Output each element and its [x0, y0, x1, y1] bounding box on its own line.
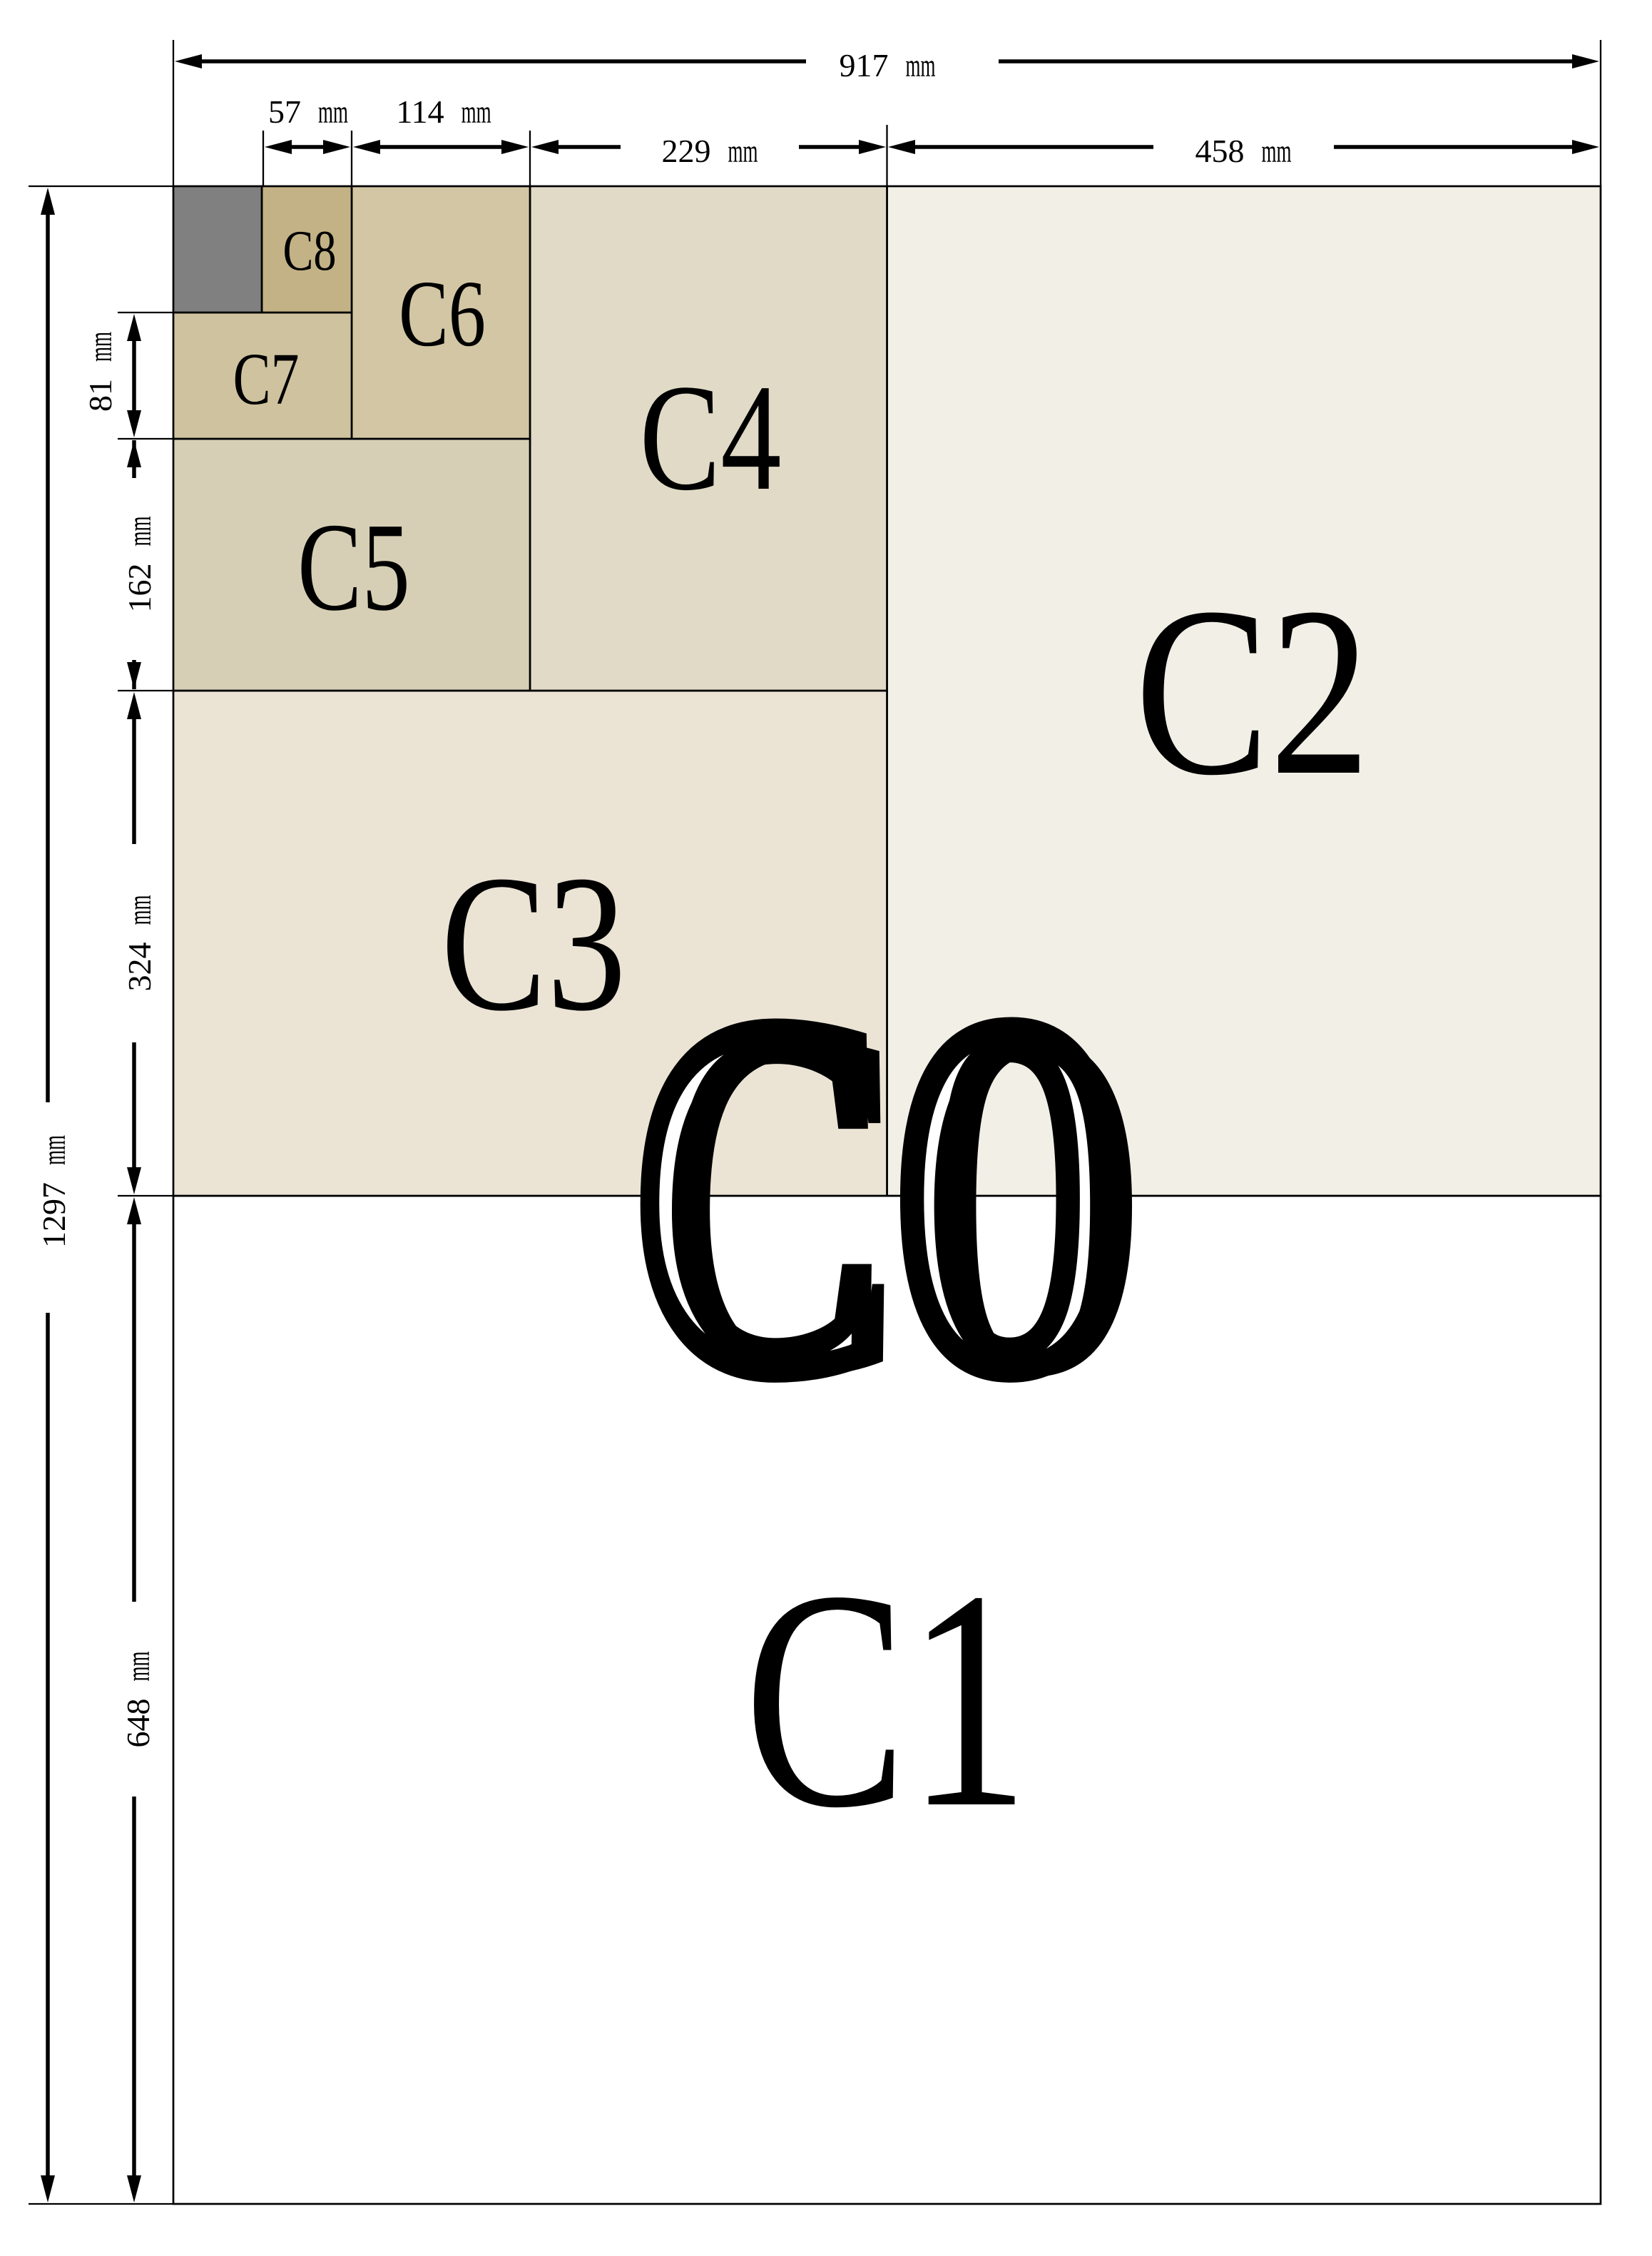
svg-text:648mm: 648mm	[120, 1651, 156, 1747]
svg-text:114mm: 114mm	[396, 93, 491, 130]
svg-text:C1: C1	[744, 1526, 1029, 1872]
svg-text:229mm: 229mm	[662, 133, 758, 169]
svg-text:162mm: 162mm	[121, 516, 158, 612]
svg-text:C3: C3	[441, 835, 626, 1052]
svg-text:1297mm: 1297mm	[36, 1135, 72, 1248]
svg-text:917mm: 917mm	[840, 47, 936, 83]
svg-text:0: 0	[917, 923, 1150, 1481]
svg-text:C6: C6	[399, 260, 486, 366]
svg-text:C5: C5	[297, 497, 410, 637]
svg-text:C: C	[657, 924, 905, 1482]
svg-text:324mm: 324mm	[121, 895, 158, 991]
svg-text:C7: C7	[233, 338, 300, 420]
svg-text:458mm: 458mm	[1195, 133, 1292, 169]
svg-text:C8: C8	[283, 220, 337, 283]
svg-text:C2: C2	[1135, 558, 1370, 825]
svg-text:C4: C4	[640, 353, 782, 522]
